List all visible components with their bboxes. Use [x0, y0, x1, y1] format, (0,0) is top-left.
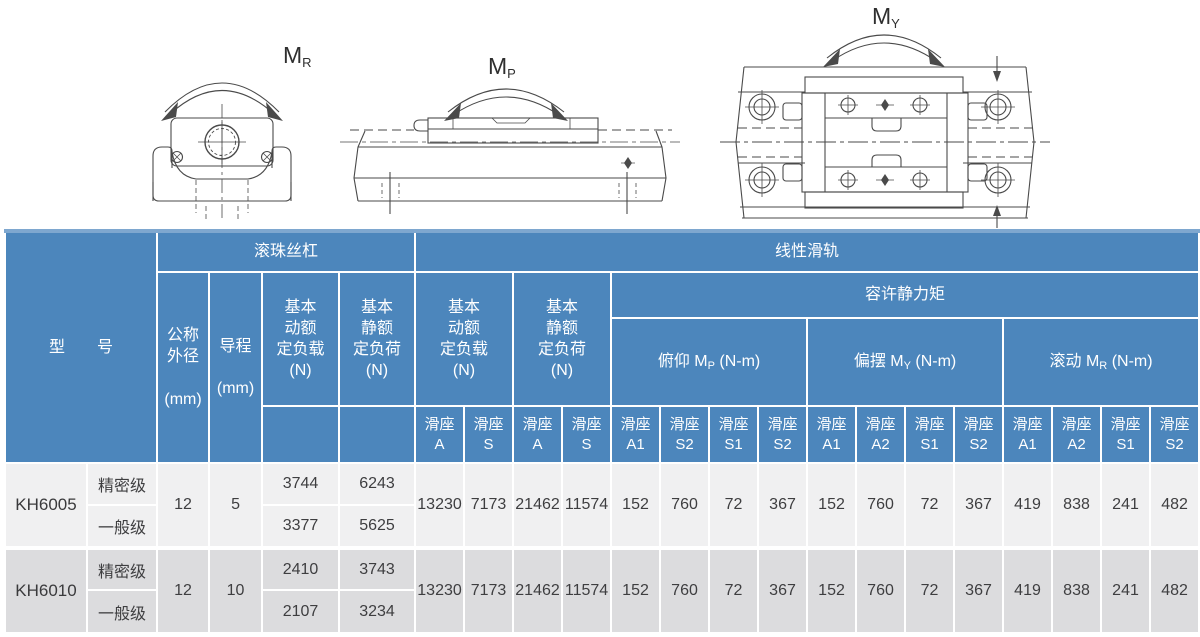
header-slide-col-10: 滑座S1	[905, 406, 954, 463]
table-cell: 241	[1101, 463, 1150, 548]
table-cell: 13230	[415, 463, 464, 548]
spec-table: 型 号 滚珠丝杠 线性滑轨 公称 外径 (mm) 导程 (mm) 基本 动额 定…	[4, 229, 1200, 634]
header-label: 线性滑轨	[775, 243, 839, 260]
slide-label: 滑座	[1004, 415, 1051, 435]
header-label: 公称 外径 (mm)	[158, 325, 208, 409]
table-cell: 838	[1052, 463, 1101, 548]
slide-label: 滑座	[759, 415, 806, 435]
my-top-view-drawing	[720, 0, 1050, 230]
carriage-screw-holes	[838, 95, 930, 190]
slide-label: S1	[710, 435, 757, 455]
table-cell: 7173	[464, 548, 513, 633]
header-label: 滚珠丝杠	[254, 243, 318, 260]
table-cell: 367	[758, 463, 807, 548]
diagram-my-top-view	[720, 0, 1050, 230]
table-cell: 152	[611, 463, 660, 548]
header-label: 导程 (mm)	[210, 336, 261, 399]
header-label: 基本 动额 定负载 (N)	[263, 297, 338, 381]
header-slide-col-13: 滑座A2	[1052, 406, 1101, 463]
slide-label: 滑座	[416, 415, 463, 435]
moment-label-text: M	[872, 3, 891, 29]
header-slide-col-2: 滑座A	[513, 406, 562, 463]
moment-label-subscript: R	[302, 55, 311, 70]
header-lead: 导程 (mm)	[209, 272, 262, 463]
slide-label: S2	[955, 435, 1002, 455]
header-slide-col-0: 滑座A	[415, 406, 464, 463]
table-cell: 72	[905, 463, 954, 548]
table-cell: 482	[1150, 463, 1199, 548]
header-lg-static-load: 基本 静额 定负荷 (N)	[513, 272, 611, 406]
header-label: 俯仰 M	[658, 353, 708, 370]
slide-label: S1	[906, 435, 953, 455]
slide-label: A	[514, 435, 561, 455]
slide-label: 滑座	[955, 415, 1002, 435]
cell-bs-dyn: 3377	[262, 505, 339, 548]
header-slide-col-7: 滑座S2	[758, 406, 807, 463]
ball-screw-shaft	[340, 130, 680, 142]
moment-subscript: Y	[904, 360, 911, 372]
moment-arc-arrow	[823, 35, 945, 67]
header-model: 型 号	[5, 231, 157, 463]
header-bs-static-spacer	[339, 406, 415, 463]
header-moment-roll: 滚动 MR (N-m)	[1003, 318, 1199, 406]
cell-bs-stat: 3743	[339, 548, 415, 590]
table-cell: 419	[1003, 548, 1052, 633]
slide-label: S1	[1102, 435, 1149, 455]
header-ball-screw-group: 滚珠丝杠	[157, 231, 415, 272]
slide-label: 滑座	[563, 415, 610, 435]
slide-label: 滑座	[808, 415, 855, 435]
header-slide-col-5: 滑座S2	[660, 406, 709, 463]
cell-od: 12	[157, 548, 209, 633]
table-cell: 152	[611, 548, 660, 633]
table-cell: 11574	[562, 548, 611, 633]
header-lg-dynamic-load: 基本 动额 定负载 (N)	[415, 272, 513, 406]
table-cell: 760	[660, 548, 709, 633]
header-slide-col-9: 滑座A2	[856, 406, 905, 463]
header-label: 型 号	[6, 337, 156, 358]
rail-top-view	[720, 67, 1050, 218]
slide-label: 滑座	[1102, 415, 1149, 435]
table-cell: 367	[758, 548, 807, 633]
table-cell: 72	[905, 548, 954, 633]
header-slide-col-6: 滑座S1	[709, 406, 758, 463]
slide-label: A2	[857, 435, 904, 455]
cell-bs-dyn: 3744	[262, 463, 339, 505]
slide-label: S2	[1151, 435, 1198, 455]
slide-label: S	[563, 435, 610, 455]
slide-label: 滑座	[857, 415, 904, 435]
moment-arc-arrow	[444, 89, 568, 121]
header-slide-col-15: 滑座S2	[1150, 406, 1199, 463]
header-label: 基本 动额 定负载 (N)	[416, 297, 512, 381]
table-cell: 760	[856, 463, 905, 548]
slide-label: 滑座	[906, 415, 953, 435]
cell-grade: 精密级	[87, 548, 157, 590]
header-slide-col-8: 滑座A1	[807, 406, 856, 463]
moment-label-text: M	[488, 53, 507, 79]
table-cell: 367	[954, 548, 1003, 633]
header-moment-pitch: 俯仰 MP (N-m)	[611, 318, 807, 406]
header-bs-static-load: 基本 静额 定负荷 (N)	[339, 272, 415, 406]
table-cell: 760	[856, 548, 905, 633]
table-cell: 72	[709, 548, 758, 633]
cell-lead: 5	[209, 463, 262, 548]
cell-od: 12	[157, 463, 209, 548]
slide-label: 滑座	[1053, 415, 1100, 435]
slide-label: 滑座	[1151, 415, 1198, 435]
table-cell: 152	[807, 548, 856, 633]
cell-bs-dyn: 2410	[262, 548, 339, 590]
slide-label: 滑座	[514, 415, 561, 435]
header-static-moment-group: 容许静力矩	[611, 272, 1199, 318]
table-cell: 241	[1101, 548, 1150, 633]
table-cell: 482	[1150, 548, 1199, 633]
cell-bs-stat: 3234	[339, 590, 415, 633]
header-label: 容许静力矩	[865, 286, 945, 303]
header-slide-col-3: 滑座S	[562, 406, 611, 463]
table-cell: 419	[1003, 463, 1052, 548]
cell-bs-stat: 6243	[339, 463, 415, 505]
header-linear-guide-group: 线性滑轨	[415, 231, 1199, 272]
header-slide-col-12: 滑座A1	[1003, 406, 1052, 463]
cell-bs-dyn: 2107	[262, 590, 339, 633]
moment-label-subscript: Y	[891, 16, 900, 31]
header-slide-col-11: 滑座S2	[954, 406, 1003, 463]
table-cell: 152	[807, 463, 856, 548]
slide-label: 滑座	[612, 415, 659, 435]
slide-label: A1	[808, 435, 855, 455]
cell-bs-stat: 5625	[339, 505, 415, 548]
slide-label: S2	[661, 435, 708, 455]
header-bs-dynamic-load: 基本 动额 定负载 (N)	[262, 272, 339, 406]
header-label-suffix: (N-m)	[911, 353, 956, 370]
header-slide-col-14: 滑座S1	[1101, 406, 1150, 463]
slide-label: 滑座	[710, 415, 757, 435]
slide-label: 滑座	[661, 415, 708, 435]
moment-label-text: M	[283, 42, 302, 68]
cell-model-kh6005: KH6005	[5, 463, 87, 548]
carriage-block	[783, 77, 987, 208]
table-cell: 21462	[513, 463, 562, 548]
cell-grade: 精密级	[87, 463, 157, 505]
slide-label: A	[416, 435, 463, 455]
table-cell: 760	[660, 463, 709, 548]
header-bs-dynamic-spacer	[262, 406, 339, 463]
moment-label-mp: MP	[488, 55, 516, 80]
header-slide-col-1: 滑座S	[464, 406, 513, 463]
header-nominal-od: 公称 外径 (mm)	[157, 272, 209, 463]
slide-label: A1	[1004, 435, 1051, 455]
header-label: 滚动 M	[1050, 353, 1100, 370]
slide-label: A2	[1053, 435, 1100, 455]
cell-grade: 一般级	[87, 590, 157, 633]
slide-label: A1	[612, 435, 659, 455]
header-label: 基本 静额 定负荷 (N)	[340, 297, 414, 381]
table-cell: 72	[709, 463, 758, 548]
table-cell: 7173	[464, 463, 513, 548]
header-slide-col-4: 滑座A1	[611, 406, 660, 463]
moment-label-mr: MR	[283, 44, 312, 69]
moment-subscript: P	[708, 360, 715, 372]
table-cell: 13230	[415, 548, 464, 633]
slide-label: S	[465, 435, 512, 455]
table-cell: 367	[954, 463, 1003, 548]
header-label: 偏摆 M	[854, 353, 904, 370]
header-label-suffix: (N-m)	[1107, 353, 1152, 370]
table-cell: 11574	[562, 463, 611, 548]
cell-lead: 10	[209, 548, 262, 633]
cell-model-kh6010: KH6010	[5, 548, 87, 633]
moment-label-subscript: P	[507, 66, 516, 81]
carriage-block	[414, 118, 598, 143]
cell-grade: 一般级	[87, 505, 157, 548]
slide-label: S2	[759, 435, 806, 455]
header-label-suffix: (N-m)	[715, 353, 760, 370]
slide-label: 滑座	[465, 415, 512, 435]
table-cell: 838	[1052, 548, 1101, 633]
header-label: 基本 静额 定负荷 (N)	[514, 297, 610, 381]
moment-label-my: MY	[872, 5, 900, 30]
header-moment-yaw: 偏摆 MY (N-m)	[807, 318, 1003, 406]
table-cell: 21462	[513, 548, 562, 633]
